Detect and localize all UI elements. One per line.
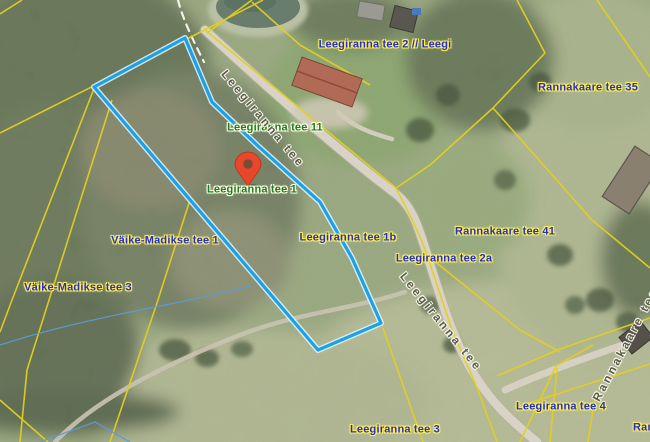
map-canvas[interactable] <box>0 0 650 442</box>
address-label: Leegiranna tee 2a <box>396 254 492 265</box>
address-label: Leegiranna tee 3 <box>350 425 440 436</box>
address-label: Väike-Madikse tee 3 <box>24 283 132 294</box>
address-label: Leegiranna tee 2 // Leegi <box>319 40 452 51</box>
marker-hole <box>243 159 253 169</box>
map-container: Leegiranna tee 2 // Leegi Rannakaare tee… <box>0 0 650 442</box>
vehicle <box>412 8 421 15</box>
selected-parcel-label: Leegiranna tee 1 <box>207 185 297 196</box>
address-label: Leegiranna tee 1b <box>300 233 397 244</box>
address-label: Rannakaare tee 35 <box>538 83 638 94</box>
address-label: Väike-Madikse tee 1 <box>111 236 219 247</box>
address-label: Leegiranna tee 4 <box>516 402 606 413</box>
address-label: Rannakaare tee 41 <box>455 227 555 238</box>
address-label-clipped: Ran <box>633 423 650 434</box>
